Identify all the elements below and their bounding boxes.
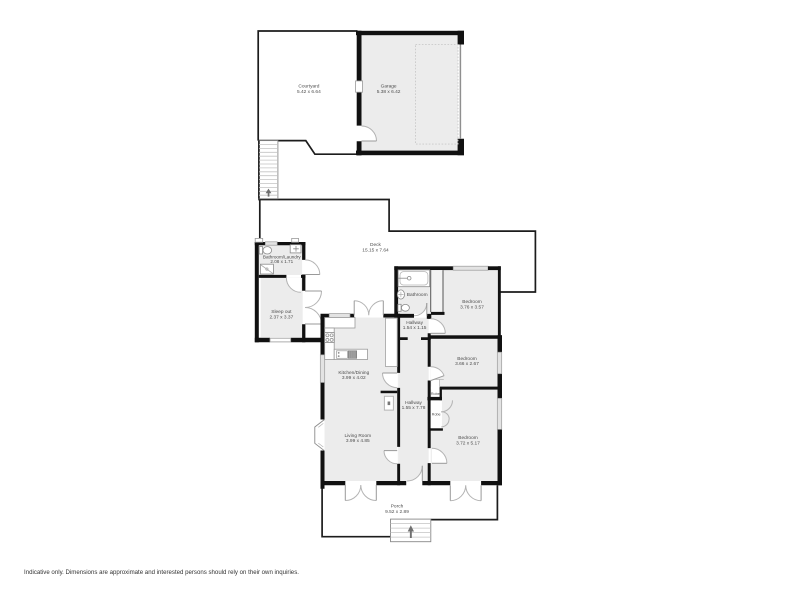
svg-text:Robe: Robe	[432, 413, 441, 417]
svg-text:3.99 x 4.85: 3.99 x 4.85	[346, 438, 370, 444]
svg-text:1.55 x 7.78: 1.55 x 7.78	[402, 405, 426, 411]
svg-text:Sleep out: Sleep out	[271, 309, 292, 315]
svg-text:5.38 x 6.42: 5.38 x 6.42	[377, 89, 401, 95]
svg-text:Bedroom: Bedroom	[457, 356, 476, 362]
svg-text:Garage: Garage	[381, 83, 397, 89]
svg-text:Indicative only. Dimensions ar: Indicative only. Dimensions are approxim…	[24, 569, 299, 576]
svg-text:1.54 x 1.15: 1.54 x 1.15	[403, 325, 427, 331]
svg-text:Hallway: Hallway	[406, 320, 423, 326]
svg-text:2.08 x 1.71: 2.08 x 1.71	[270, 259, 293, 264]
svg-text:3.76 x 3.57: 3.76 x 3.57	[460, 305, 484, 311]
svg-text:9.52 x 2.89: 9.52 x 2.89	[385, 509, 409, 515]
svg-text:5.42 x 6.64: 5.42 x 6.64	[297, 89, 321, 95]
svg-text:15.15 x 7.64: 15.15 x 7.64	[362, 247, 389, 253]
svg-text:3.66 x 2.67: 3.66 x 2.67	[455, 361, 479, 367]
svg-text:Living Room: Living Room	[344, 433, 371, 439]
svg-text:Bedroom: Bedroom	[462, 299, 481, 305]
svg-text:Deck: Deck	[370, 242, 382, 248]
svg-text:3.99 x 4.02: 3.99 x 4.02	[342, 375, 366, 381]
svg-text:3.72 x 5.17: 3.72 x 5.17	[456, 441, 480, 447]
svg-text:Porch: Porch	[391, 504, 404, 510]
svg-text:Courtyard: Courtyard	[298, 83, 319, 89]
svg-text:Robe: Robe	[431, 392, 440, 396]
svg-text:Kitchen/Dining: Kitchen/Dining	[338, 370, 369, 376]
svg-text:Bedroom: Bedroom	[458, 435, 477, 441]
svg-text:2.37 x 3.37: 2.37 x 3.37	[270, 315, 294, 321]
svg-text:Bathroom: Bathroom	[407, 292, 428, 298]
